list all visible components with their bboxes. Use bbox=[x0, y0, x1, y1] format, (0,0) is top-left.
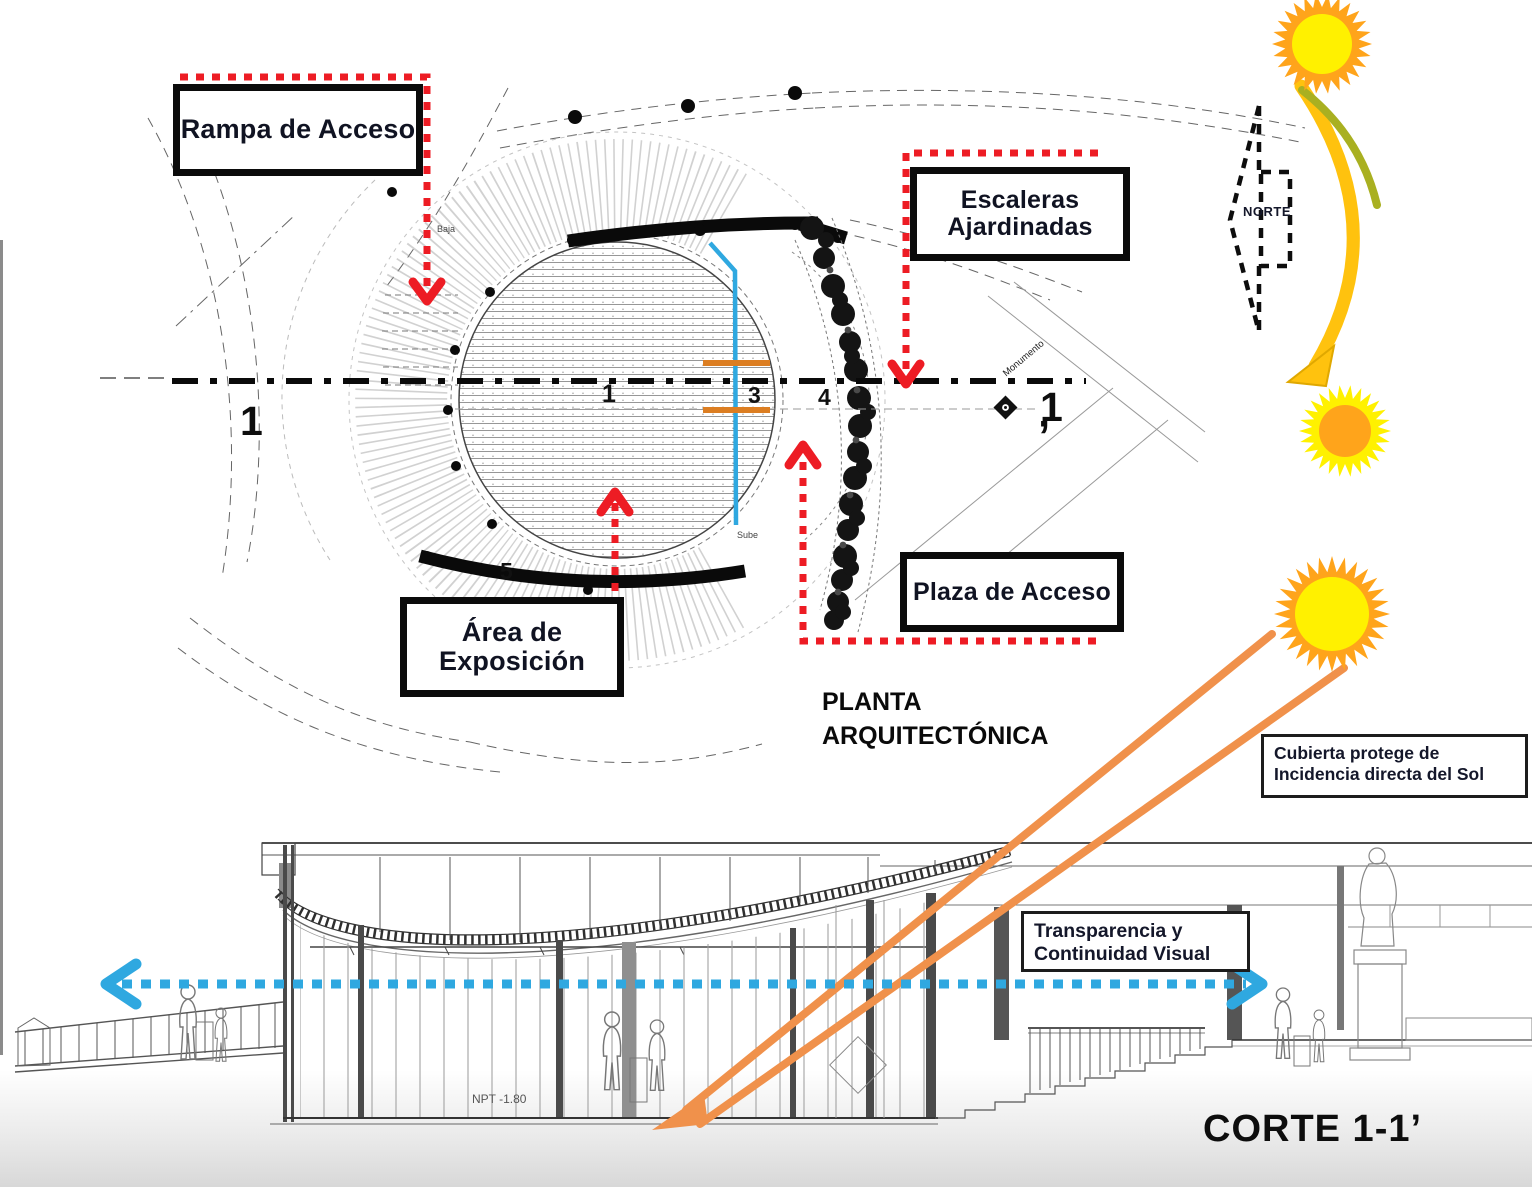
grid-number-1: 1 bbox=[602, 380, 616, 409]
callout-area-de-exposicion: Área de Exposición bbox=[400, 597, 624, 697]
north-and-sunpath bbox=[1230, 0, 1391, 477]
grid-number-5: 5 bbox=[500, 558, 513, 585]
note-transparencia-box: Transparencia y Continuidad Visual bbox=[1021, 911, 1250, 972]
note-cubierta-box: Cubierta protege de Incidencia directa d… bbox=[1261, 734, 1528, 798]
callout-plaza-label: Plaza de Acceso bbox=[913, 579, 1111, 606]
glass-wall bbox=[300, 890, 932, 1118]
tree-band bbox=[795, 216, 881, 632]
callout-rampa-label: Rampa de Acceso bbox=[181, 115, 416, 144]
sun-east-icon bbox=[1272, 0, 1372, 94]
plan-title: PLANTA ARQUITECTÓNICA bbox=[822, 686, 1102, 754]
stairs bbox=[935, 1028, 1232, 1118]
section-level-npt: NPT -1.80 bbox=[472, 1092, 526, 1106]
callout-rampa-de-acceso: Rampa de Acceso bbox=[173, 84, 423, 176]
callout-plaza-de-acceso: Plaza de Acceso bbox=[900, 552, 1124, 632]
grid-number-3: 3 bbox=[748, 382, 761, 409]
sun-path-arrow-icon bbox=[1288, 86, 1377, 386]
note-cubierta-label: Cubierta protege de Incidencia directa d… bbox=[1274, 743, 1484, 784]
callout-area-label: Área de Exposición bbox=[407, 618, 617, 676]
sun-west-icon bbox=[1299, 385, 1391, 476]
note-transparencia-label: Transparencia y Continuidad Visual bbox=[1034, 920, 1210, 965]
cut-mark-left: 1 bbox=[240, 398, 263, 445]
statue-monument bbox=[1350, 848, 1410, 1060]
monument-marker bbox=[993, 395, 1017, 419]
drawing-canvas bbox=[0, 0, 1532, 1187]
sun-noon-icon bbox=[1274, 556, 1390, 672]
left-ramp bbox=[15, 1002, 283, 1072]
north-label: NORTE bbox=[1243, 204, 1291, 219]
north-arrow-icon bbox=[1230, 106, 1290, 332]
callout-escaleras-ajardinadas: Escaleras Ajardinadas bbox=[910, 167, 1130, 261]
plan-note-baja: Baja bbox=[437, 224, 455, 234]
callout-escaleras-label: Escaleras Ajardinadas bbox=[917, 187, 1123, 241]
section-title: CORTE 1-1’ bbox=[1203, 1108, 1422, 1151]
grid-number-4: 4 bbox=[818, 384, 831, 411]
cut-mark-right-prime: ’ bbox=[1038, 412, 1050, 462]
plan-note-sube: Sube bbox=[737, 530, 758, 540]
